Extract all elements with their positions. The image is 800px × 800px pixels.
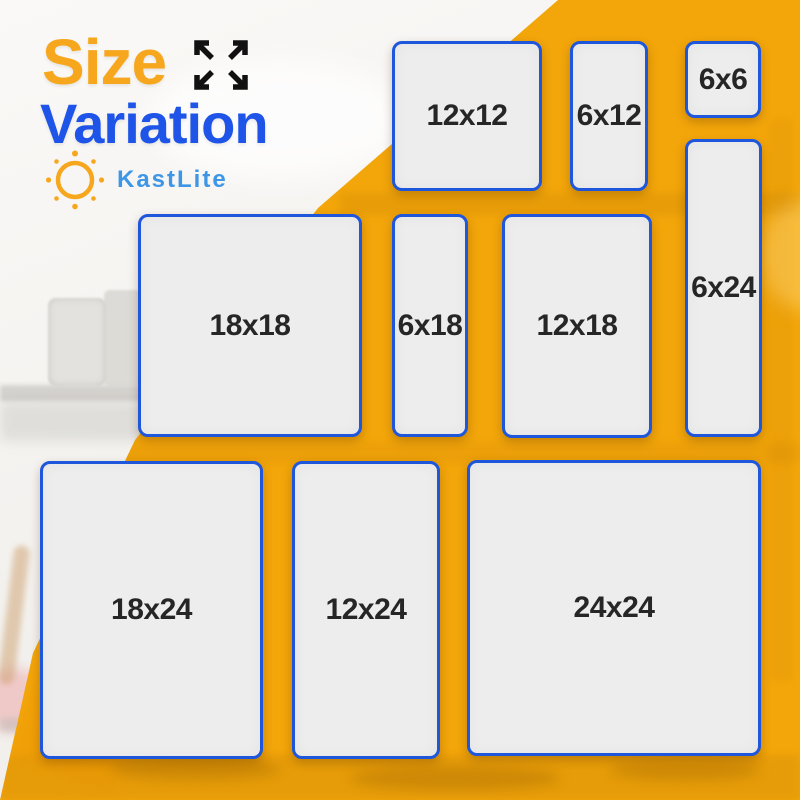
size-box-18x18: 18x18 (138, 214, 362, 437)
size-box-6x24: 6x24 (685, 139, 762, 437)
expand-arrows-icon (190, 37, 252, 93)
size-box-6x18: 6x18 (392, 214, 468, 437)
brand-logo: KastLite (45, 150, 228, 210)
page-title-variation: Variation (40, 96, 268, 152)
size-box-label: 6x24 (691, 271, 756, 305)
size-box-label: 24x24 (574, 591, 655, 625)
size-box-6x6: 6x6 (685, 41, 761, 118)
size-box-18x24: 18x24 (40, 461, 263, 759)
size-box-label: 18x18 (210, 309, 291, 343)
brand-name: KastLite (117, 166, 228, 194)
size-box-label: 18x24 (111, 593, 192, 627)
size-box-label: 12x24 (326, 593, 407, 627)
sun-icon (45, 150, 105, 210)
size-box-label: 12x12 (427, 99, 508, 133)
size-box-label: 12x18 (537, 309, 618, 343)
size-box-6x12: 6x12 (570, 41, 648, 191)
size-box-label: 6x6 (699, 63, 748, 97)
size-box-label: 6x12 (577, 99, 642, 133)
size-box-label: 6x18 (398, 309, 463, 343)
size-box-24x24: 24x24 (467, 460, 761, 756)
size-box-12x12: 12x12 (392, 41, 542, 191)
page-title-size: Size (42, 30, 166, 94)
size-box-12x18: 12x18 (502, 214, 652, 438)
size-box-12x24: 12x24 (292, 461, 440, 759)
